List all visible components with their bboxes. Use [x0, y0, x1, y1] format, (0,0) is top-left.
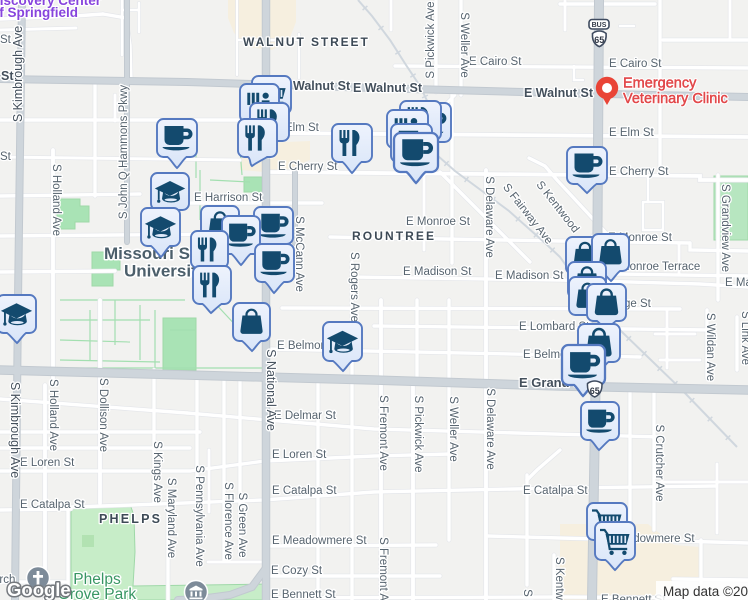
svg-text:E Loren St: E Loren St — [20, 457, 75, 469]
svg-text:S National Ave: S National Ave — [264, 349, 278, 431]
svg-text:E Walnut St: E Walnut St — [353, 81, 423, 95]
svg-text:PHELPS: PHELPS — [99, 512, 162, 526]
svg-text:E Monroe St: E Monroe St — [406, 216, 471, 228]
svg-text:E Meadowmere St: E Meadowmere St — [272, 535, 367, 547]
svg-text:S Kimbrough Ave: S Kimbrough Ave — [11, 26, 25, 122]
svg-text:S Rogers Ave: S Rogers Ave — [348, 252, 360, 322]
svg-text:S Holland Ave: S Holland Ave — [47, 379, 59, 451]
svg-text:E Elm St: E Elm St — [609, 127, 655, 139]
svg-text:S Fremont Ave: S Fremont Ave — [377, 537, 389, 600]
svg-text:E Bennett St: E Bennett St — [271, 589, 336, 600]
svg-text:S Delaware Ave: S Delaware Ave — [483, 176, 495, 258]
svg-text:S Pennsylvania Ave: S Pennsylvania Ave — [193, 465, 205, 566]
svg-text:Google: Google — [7, 579, 71, 600]
svg-text:E Cairo St: E Cairo St — [469, 56, 522, 68]
svg-text:St: St — [0, 151, 12, 163]
svg-text:65: 65 — [594, 35, 604, 45]
svg-text:E Madison St: E Madison St — [403, 266, 472, 278]
svg-text:S Florence Ave: S Florence Ave — [222, 482, 234, 560]
svg-text:ge St: ge St — [624, 298, 652, 310]
svg-text:S Crutcher Ave: S Crutcher Ave — [653, 424, 665, 501]
svg-text:S Dollison Ave: S Dollison Ave — [97, 378, 109, 452]
svg-text:ROUNTREE: ROUNTREE — [352, 229, 436, 243]
svg-text:S Wildan Ave: S Wildan Ave — [704, 313, 716, 381]
svg-text:Veterinary Clinic: Veterinary Clinic — [623, 91, 728, 107]
svg-text:E Madison St: E Madison St — [495, 270, 564, 282]
svg-text:E Harrison St: E Harrison St — [194, 192, 263, 204]
svg-text:E Cherry St: E Cherry St — [609, 166, 669, 178]
svg-text:S Fremont Ave: S Fremont Ave — [377, 395, 389, 471]
svg-text:S Weller Ave: S Weller Ave — [447, 396, 459, 461]
svg-text:S Holland Ave: S Holland Ave — [50, 164, 62, 236]
svg-text:St: St — [0, 34, 12, 46]
svg-text:Walnut St: Walnut St — [293, 79, 351, 93]
svg-text:E Delmar St: E Delmar St — [274, 410, 337, 422]
svg-text:E Madison St: E Madison St — [725, 277, 748, 289]
svg-text:S F: S F — [521, 589, 533, 600]
svg-text:Map data ©2026: Map data ©2026 — [663, 584, 748, 599]
svg-text:Monroe Terrace: Monroe Terrace — [620, 261, 700, 273]
svg-text:S Maryland Ave: S Maryland Ave — [165, 478, 177, 558]
svg-text:S Pickwick Ave: S Pickwick Ave — [425, 1, 437, 78]
svg-text:E Cozy St: E Cozy St — [271, 565, 323, 577]
svg-text:E Loren St: E Loren St — [272, 449, 327, 461]
svg-text:E Walnut St: E Walnut St — [524, 86, 594, 100]
svg-text:WALNUT STREET: WALNUT STREET — [243, 35, 370, 49]
svg-text:of Springfield: of Springfield — [0, 5, 78, 20]
svg-text:S Kings Ave: S Kings Ave — [151, 441, 163, 503]
svg-text:S Pickwick Ave: S Pickwick Ave — [412, 395, 424, 472]
svg-text:S John Q Hammons Pkwy: S John Q Hammons Pkwy — [118, 85, 130, 219]
svg-text:E Catalpa St: E Catalpa St — [523, 485, 588, 497]
svg-text:S Grandview Ave: S Grandview Ave — [719, 184, 731, 272]
svg-text:S Kimbrough Ave: S Kimbrough Ave — [8, 382, 22, 478]
svg-text:Elm St: Elm St — [285, 122, 320, 134]
svg-text:E Catalpa St: E Catalpa St — [272, 485, 337, 497]
svg-text:S Green Ave: S Green Ave — [236, 493, 248, 558]
svg-text:S Link Ave: S Link Ave — [739, 311, 748, 365]
svg-text:BUS: BUS — [592, 22, 607, 29]
svg-text:S Kentwood: S Kentwood — [553, 557, 565, 600]
svg-text:E Cairo St: E Cairo St — [609, 58, 662, 70]
svg-text:Emergency: Emergency — [623, 76, 697, 92]
svg-text:E Catalpa St: E Catalpa St — [20, 499, 85, 511]
svg-text:S Weller Ave: S Weller Ave — [458, 12, 470, 77]
svg-text:S Delaware Ave: S Delaware Ave — [484, 388, 496, 470]
svg-text:E Cherry St: E Cherry St — [278, 161, 338, 173]
svg-text:65: 65 — [590, 386, 600, 396]
